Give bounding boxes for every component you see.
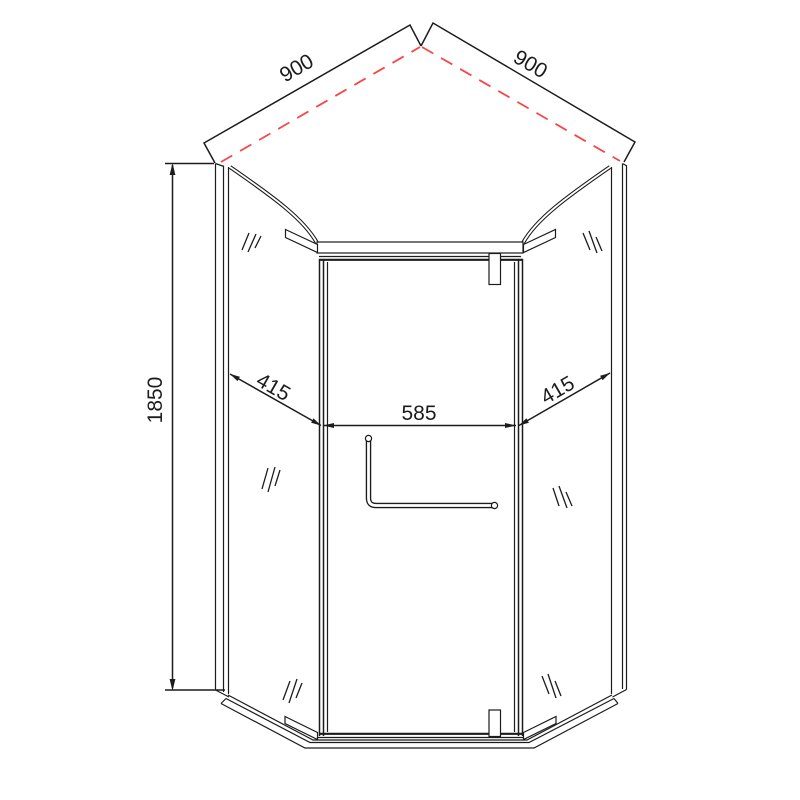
towel-bar-end-cap [491,502,497,508]
glass-hatch-right-bottom [542,674,561,698]
towel-bar-top-cap [365,435,371,441]
tray-right-cap [614,699,618,704]
width-dimensions: 415 585 415 [230,369,610,428]
right-profile-top-bevel [623,164,628,167]
dim-line-900-left [204,25,421,163]
right-wall-profile [613,164,628,698]
top-left-red-dashed-edge [221,47,420,162]
drawing-canvas: 900 900 1850 [0,0,800,800]
left-profile-top-bevel [216,164,225,167]
glass-hatch-left-top [242,233,261,252]
towel-bar-handle [365,435,497,508]
height-dimension-1850: 1850 [144,163,225,691]
base-tray [221,695,618,748]
left-top-curve [230,167,317,243]
tray-rim-bottom [221,704,618,749]
arrow-up [170,163,176,175]
door-top-bar [317,242,523,253]
dim-left-panel-label: 415 [252,369,294,406]
glass-hatch-left-middle [262,467,280,492]
door-bottom-guide-block [489,710,501,737]
glass-hatch-left-bottom [283,679,302,703]
door-panel [285,230,556,740]
dim-top-right-label: 900 [509,46,551,84]
glass-hatch-right-middle [553,486,572,508]
tray-left-cap [221,699,226,704]
door-top-hinge-block [489,254,501,285]
arrow-down [170,679,176,691]
right-top-curve [523,167,610,243]
shower-enclosure-drawing: 900 900 1850 [0,0,800,800]
arrow-415-right-end [600,373,610,380]
arrow-585-left [323,423,334,428]
bottom-right-bracket [524,717,557,740]
arrow-415-right-start [519,418,529,425]
left-wall-profile [216,164,230,698]
left-profile-bottom-bevel [216,690,230,697]
top-dimension-900: 900 900 [204,23,635,163]
left-glass-panel [229,167,318,703]
right-profile-bottom-bevel [613,690,627,698]
dim-door-width-label: 585 [401,402,436,425]
dim-line-900-right [421,23,635,162]
glass-hatch-right-top [583,231,602,253]
arrow-415-left-start [230,374,240,381]
dim-right-panel-label: 415 [537,372,579,409]
dim-height-label: 1850 [144,377,167,424]
